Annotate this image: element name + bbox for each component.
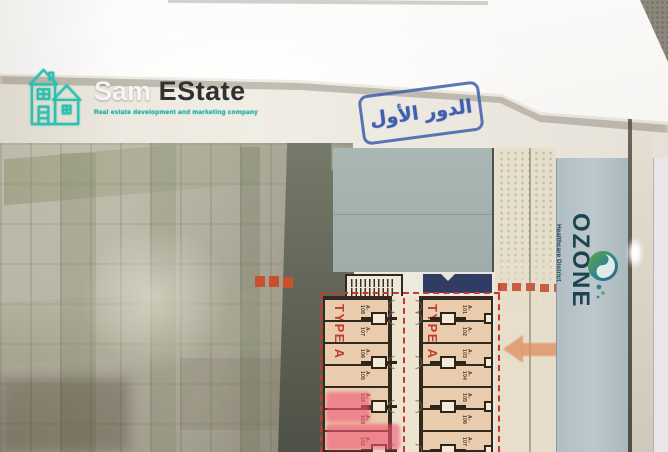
building-mass-block — [333, 148, 494, 272]
brand-name: Sam EState — [94, 78, 258, 105]
plan-boundary-dashed — [320, 293, 322, 452]
balcony-box — [484, 401, 493, 412]
unit-number: A-104 — [461, 371, 471, 381]
page-edge-margin — [632, 116, 653, 452]
orange-marker — [255, 276, 265, 287]
facade-shadow — [0, 378, 130, 452]
unit-number: A-101 — [461, 305, 471, 315]
bathroom-pod — [371, 356, 387, 369]
unit-number: A-105 — [359, 371, 369, 381]
unit-number: A-106 — [461, 415, 471, 425]
unit-number: A-107 — [359, 327, 369, 337]
stair-treads — [351, 279, 395, 287]
highlighted-unit — [326, 392, 370, 422]
facade-light-patch — [80, 223, 230, 373]
left-arrow-icon — [522, 343, 560, 356]
unit-number: A-103 — [461, 349, 471, 359]
entry-notch — [441, 274, 455, 281]
balcony-box — [484, 313, 493, 324]
orange-dash-marker — [540, 284, 549, 292]
house-icon — [28, 66, 86, 128]
swirl-circle-icon — [586, 250, 622, 302]
paper-glare — [627, 238, 643, 268]
highlighted-unit — [326, 424, 400, 450]
underlying-page — [653, 158, 668, 452]
brand-name-second: EState — [159, 76, 246, 106]
orange-dash-marker — [512, 283, 521, 291]
orange-marker — [269, 276, 279, 287]
unit-row: A-102 — [423, 320, 491, 342]
bathroom-pod — [440, 444, 456, 452]
unit-number: A-107 — [461, 437, 471, 447]
left-arrow-icon — [503, 335, 523, 363]
unit-number: A-105 — [461, 393, 471, 403]
bathroom-pod — [440, 356, 456, 369]
unit-row: A-104 — [423, 364, 491, 386]
balcony-box — [484, 357, 493, 368]
balcony-box — [484, 445, 493, 452]
core-block — [423, 274, 492, 293]
unit-number: A-102 — [461, 327, 471, 337]
brand-name-first: Sam — [94, 76, 151, 106]
orange-marker — [283, 277, 293, 288]
corridor-centerline-dashed — [403, 298, 405, 452]
bathroom-pod — [371, 312, 387, 325]
unit-number: A-108 — [359, 305, 369, 315]
plan-boundary-dashed — [322, 292, 500, 294]
brand-tagline: Real estate development and marketing co… — [94, 109, 258, 116]
titleblock-subtitle: Healthcare District — [555, 224, 562, 344]
brand-watermark: Sam EState Real estate development and m… — [28, 66, 258, 128]
floorplan-photo: TYPE A A-108 A-107 A-106 A-105 A-104 A-1… — [0, 0, 668, 452]
bathroom-pod — [371, 400, 387, 413]
orange-dash-marker — [526, 283, 535, 291]
bathroom-pod — [440, 312, 456, 325]
unit-row: A-106 — [423, 408, 491, 430]
unit-number: A-106 — [359, 349, 369, 359]
plan-boundary-dashed — [498, 284, 500, 452]
bathroom-pod — [440, 400, 456, 413]
